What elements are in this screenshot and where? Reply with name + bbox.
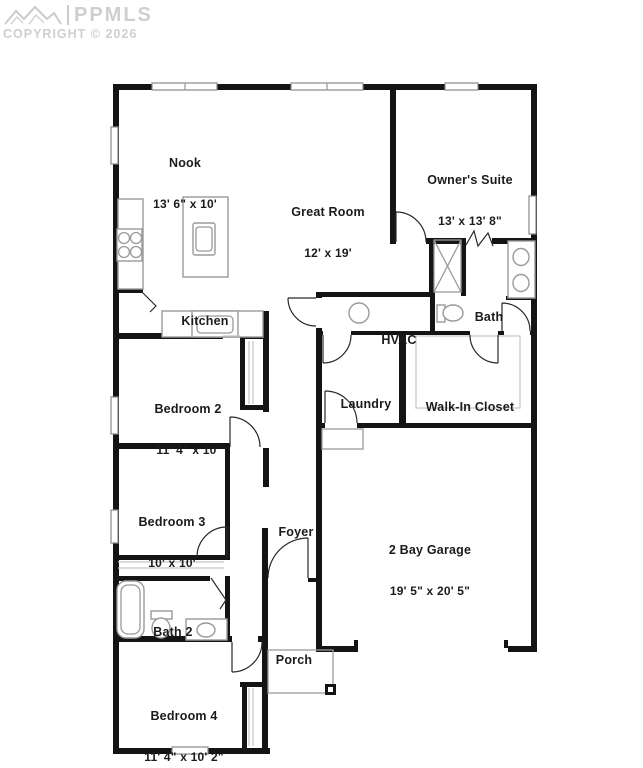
room-name: Kitchen [115, 315, 295, 329]
room-label-walk-in-closet: Walk-In Closet [380, 374, 560, 442]
room-label-garage: 2 Bay Garage 19' 5" x 20' 5" [340, 517, 520, 625]
room-label-owners-suite: Owner's Suite 13' x 13' 8" [380, 147, 560, 255]
wall-segment [308, 578, 318, 582]
room-name: Bedroom 4 [94, 710, 274, 724]
window-suite-top [445, 83, 478, 90]
watermark-brand: PPMLS [74, 4, 153, 27]
watermark: PPMLS COPYRIGHT © 2026 [3, 3, 153, 41]
mountains-icon [3, 3, 63, 27]
wall-segment [504, 640, 508, 648]
room-name: Walk-In Closet [380, 401, 560, 415]
room-label-bath: Bath [399, 284, 579, 352]
room-name: 2 Bay Garage [340, 544, 520, 558]
room-label-kitchen: Kitchen [115, 288, 295, 356]
room-dims: 19' 5" x 20' 5" [340, 585, 520, 599]
room-name: Owner's Suite [380, 174, 560, 188]
room-dims: 11' 4" x 10' 2" [94, 751, 274, 765]
floor-plan-canvas: Nook 13' 6" x 10' Great Room 12' x 19' O… [0, 0, 643, 768]
room-name: Bath [399, 311, 579, 325]
wall-segment [508, 646, 537, 652]
room-name: Nook [95, 157, 275, 171]
room-name: Bedroom 2 [98, 403, 278, 417]
room-dims: 11' 4" x 10' [98, 444, 278, 458]
room-label-bedroom2: Bedroom 2 11' 4" x 10' [98, 376, 278, 484]
watermark-divider [67, 5, 69, 25]
room-name: Porch [204, 654, 384, 668]
room-label-bedroom4: Bedroom 4 11' 4" x 10' 2" [94, 683, 274, 768]
watermark-logo-row: PPMLS [3, 3, 153, 27]
room-dims: 13' x 13' 8" [380, 215, 560, 229]
watermark-copyright: COPYRIGHT © 2026 [3, 27, 153, 41]
